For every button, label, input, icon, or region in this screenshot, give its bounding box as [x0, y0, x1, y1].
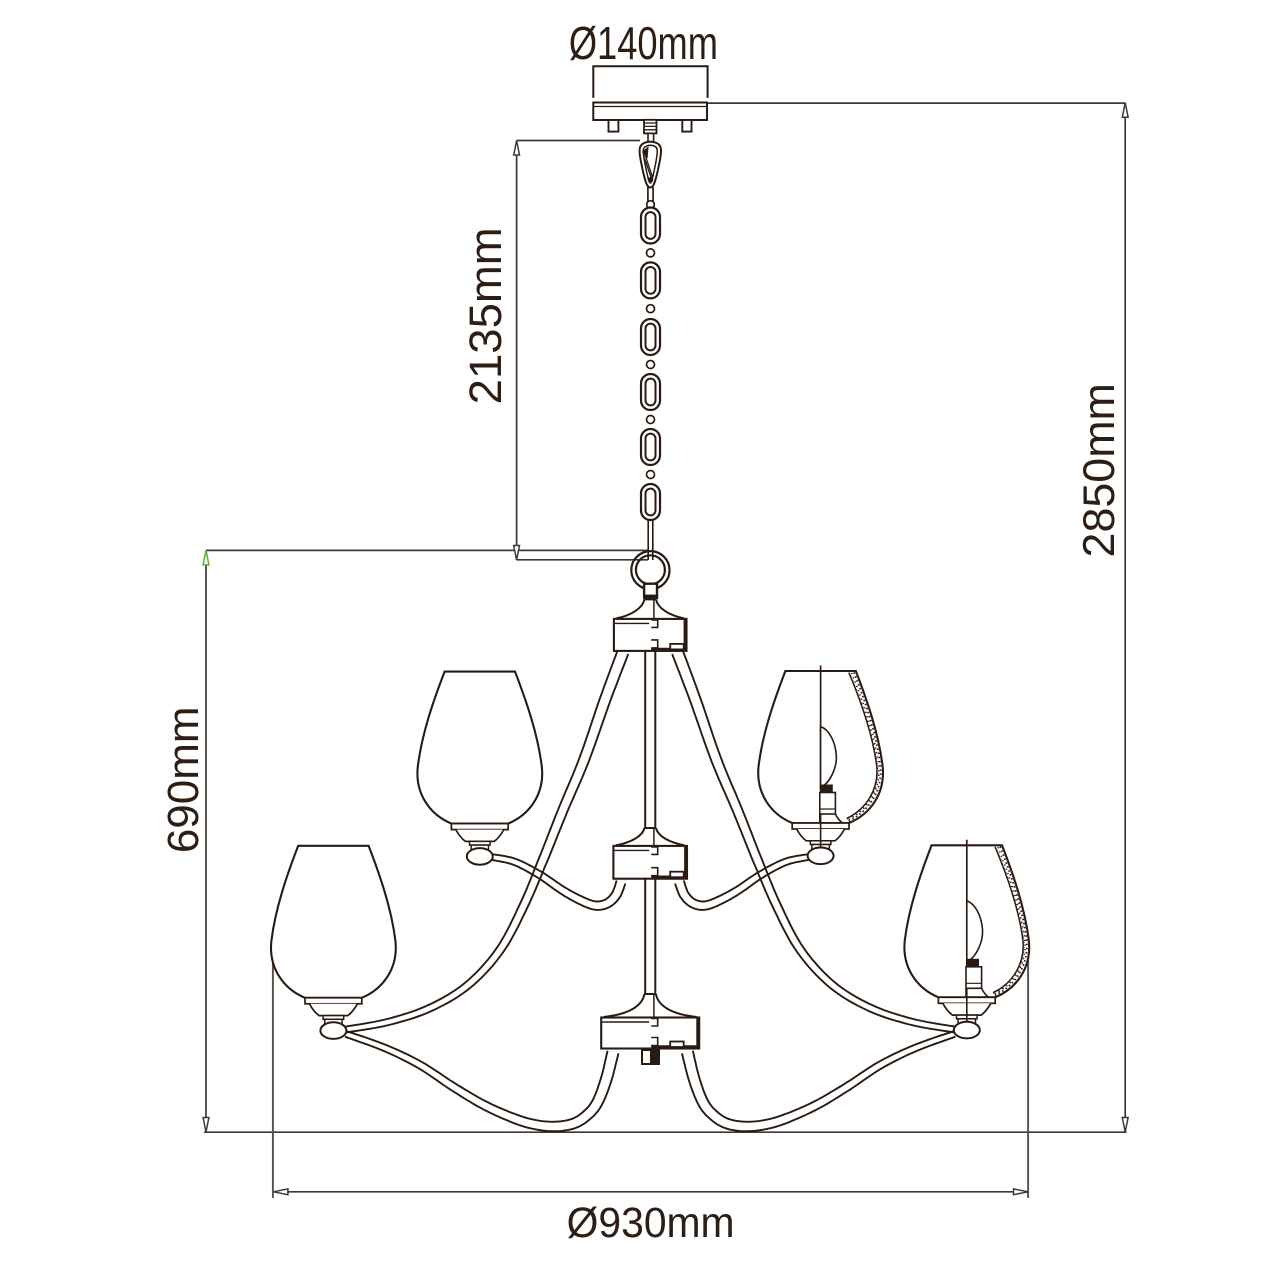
svg-text:2850mm: 2850mm	[1074, 383, 1124, 557]
svg-text:690mm: 690mm	[159, 706, 208, 853]
svg-text:Ø930mm: Ø930mm	[567, 1198, 735, 1246]
svg-text:2135mm: 2135mm	[460, 227, 511, 404]
svg-text:Ø140mm: Ø140mm	[569, 17, 718, 69]
